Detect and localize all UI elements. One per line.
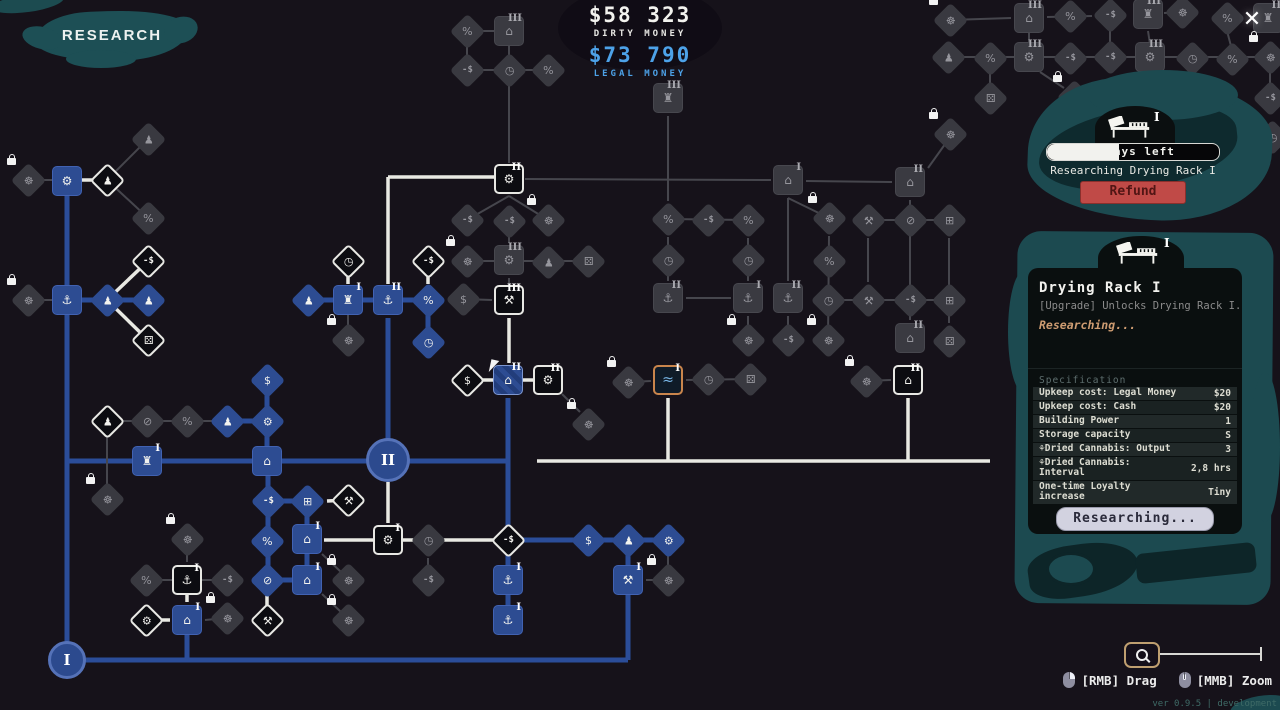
factory-icon: ⌂	[303, 533, 311, 545]
car-icon: ⚙	[141, 615, 151, 626]
spec-label: Upkeep cost: Cash	[1039, 402, 1136, 412]
factory-icon: ⌂	[504, 374, 512, 386]
tech-node[interactable]: ⚙II	[533, 365, 563, 395]
star-icon: ☸	[945, 129, 955, 140]
spec-row: One-time Loyalty increaseTiny	[1033, 481, 1237, 504]
moneyminus-icon: -$	[143, 257, 154, 266]
dice-icon: ⚄	[583, 256, 593, 267]
star-icon: ☸	[343, 335, 353, 346]
money-icon: $	[464, 375, 471, 386]
tech-node[interactable]: ⚙I	[373, 525, 403, 555]
research-screen: ☸⚙♟♟%☸⚓♟♟-$⚄♟⊘%♟⚙$♜I⌂☸◷♜I⚓II-$%◷☸♟⚙II-$-…	[0, 0, 1280, 710]
spec-value: 1	[1225, 416, 1231, 427]
node-numeral: II	[914, 320, 923, 331]
moneyminus-icon: -$	[423, 576, 434, 585]
star-icon: ☸	[222, 613, 232, 624]
truck-icon: ⚒	[262, 615, 272, 626]
lock-icon	[7, 278, 16, 285]
percent-icon: %	[262, 535, 272, 546]
tech-node[interactable]: ♜III	[653, 83, 683, 113]
dice-icon: ⚄	[143, 335, 153, 346]
tech-node[interactable]: ⚓I	[172, 565, 202, 595]
tech-node[interactable]: II	[366, 438, 410, 482]
dirty-money-amount: $58 323	[540, 3, 740, 27]
tech-node[interactable]: ⚙II	[494, 164, 524, 194]
lock-icon	[527, 198, 536, 205]
lock-icon	[845, 359, 854, 366]
tent-icon: ⌂	[183, 614, 191, 626]
water-icon: ≈	[662, 373, 674, 387]
dirty-money-label: DIRTY MONEY	[540, 29, 740, 39]
timer-icon: ◷	[743, 254, 753, 265]
percent-icon: %	[1065, 10, 1075, 21]
page-title: RESEARCH	[36, 27, 188, 44]
zoom-slider-endcap	[1260, 647, 1262, 661]
percent-icon: %	[182, 415, 192, 426]
tech-node[interactable]: ⌂I	[773, 165, 803, 195]
node-numeral: I	[516, 562, 521, 573]
refund-button[interactable]: Refund	[1080, 181, 1186, 204]
pill-icon: ⊞	[944, 295, 953, 306]
lock-icon	[86, 477, 95, 484]
spec-row: Upkeep cost: Legal Money$20	[1033, 387, 1237, 400]
star-icon: ☸	[543, 215, 553, 226]
divider	[1028, 368, 1242, 369]
star-icon: ☸	[343, 615, 353, 626]
bank-icon: ♜	[1143, 8, 1154, 20]
node-numeral: II	[392, 282, 401, 293]
tech-node[interactable]: ⚓II	[373, 285, 403, 315]
money-display: $58 323 DIRTY MONEY $73 790 LEGAL MONEY	[540, 0, 740, 80]
control-hints: [RMB] Drag [MMB] Zoom	[1063, 672, 1272, 688]
lock-icon	[327, 558, 336, 565]
factory-icon: ⌂	[906, 332, 914, 344]
tech-node[interactable]: ⌂I	[172, 605, 202, 635]
star-icon: ☸	[824, 213, 834, 224]
moneyminus-icon: -$	[1105, 11, 1116, 20]
node-numeral: II	[792, 280, 801, 291]
percent-icon: %	[1227, 53, 1237, 64]
person-icon: ♟	[143, 295, 153, 306]
person-icon: ♟	[943, 52, 953, 63]
tech-node[interactable]: ⌂II	[895, 323, 925, 353]
timer-icon: ◷	[504, 64, 514, 75]
node-numeral: I	[63, 651, 70, 669]
node-numeral: I	[675, 363, 680, 374]
tech-node[interactable]: ⚙	[52, 166, 82, 196]
node-numeral: III	[508, 242, 522, 253]
boat-icon: ⚓	[663, 292, 674, 304]
building-info-panel: I Drying Rack I [Upgrade] Unlocks Drying…	[1028, 268, 1242, 534]
building-subtitle: [Upgrade] Unlocks Drying Rack I.	[1039, 300, 1241, 312]
spec-value: 2,8 hrs	[1191, 463, 1231, 474]
node-numeral: III	[1147, 0, 1161, 7]
status-text: Researching Drying Rack I	[1040, 164, 1226, 177]
tech-node[interactable]: ⚙III	[494, 245, 524, 275]
forbidden-icon: ⊘	[905, 215, 914, 226]
forbidden-icon: ⊘	[142, 416, 151, 427]
pill-icon: ⊞	[302, 496, 311, 507]
boat-icon: ⚓	[743, 292, 754, 304]
factory-icon: ⌂	[906, 176, 914, 188]
building-title: Drying Rack I	[1039, 280, 1162, 296]
tech-node[interactable]: ♜III	[1133, 0, 1163, 29]
boat-icon: ⚓	[383, 294, 394, 306]
node-numeral: I	[356, 282, 361, 293]
spec-row: ⚘Dried Cannabis: Interval2,8 hrs	[1033, 457, 1237, 480]
tech-node[interactable]: ⌂	[252, 446, 282, 476]
car-icon: ⚙	[663, 535, 673, 546]
moneyminus-icon: -$	[423, 257, 434, 266]
tech-node[interactable]: ⚒I	[613, 565, 643, 595]
researching-button[interactable]: Researching...	[1056, 507, 1214, 531]
node-numeral: III	[1028, 39, 1042, 50]
spec-label: One-time Loyalty increase	[1039, 482, 1179, 503]
factory-icon: ⌂	[784, 174, 792, 186]
zoom-control	[1124, 642, 1272, 666]
star-icon: ☸	[945, 15, 955, 26]
boat-icon: ⚓	[503, 614, 514, 626]
money-icon: $	[460, 294, 467, 305]
tech-node[interactable]: ♜I	[132, 446, 162, 476]
star-icon: ☸	[102, 494, 112, 505]
node-numeral: II	[551, 363, 560, 374]
spec-row: Storage capacityS	[1033, 429, 1237, 442]
lock-icon	[1249, 35, 1258, 42]
boat-icon: ⚓	[62, 294, 73, 306]
car-icon: ⚙	[1024, 51, 1035, 63]
truck-icon: ⚒	[504, 294, 515, 306]
percent-icon: %	[743, 214, 753, 225]
truck-icon: ⚒	[863, 295, 873, 306]
tech-node[interactable]: ⚙III	[1014, 42, 1044, 72]
node-numeral: I	[796, 162, 801, 173]
zoom-hint: [MMB] Zoom	[1179, 672, 1272, 688]
percent-icon: %	[663, 213, 673, 224]
lock-icon	[327, 598, 336, 605]
spec-label: Storage capacity	[1039, 430, 1131, 440]
person-icon: ♟	[143, 134, 153, 145]
car-icon: ⚙	[262, 416, 272, 427]
timer-icon: ◷	[423, 534, 433, 545]
progress-label: 8 days left	[1047, 144, 1219, 160]
truck-icon: ⚒	[623, 574, 634, 586]
boat-icon: ⚓	[503, 574, 514, 586]
lock-icon	[567, 402, 576, 409]
node-numeral: I	[636, 562, 641, 573]
percent-icon: %	[141, 574, 151, 585]
tech-node[interactable]: ⌂II	[493, 365, 523, 395]
lock-icon	[7, 158, 16, 165]
tech-node[interactable]: ⌂II	[893, 365, 923, 395]
timer-icon: ◷	[1187, 52, 1197, 63]
moneyminus-icon: -$	[703, 216, 714, 225]
spec-row: ⚘Dried Cannabis: Output3	[1033, 443, 1237, 456]
percent-icon: %	[143, 212, 153, 223]
lock-icon	[446, 239, 455, 246]
spec-label: Upkeep cost: Legal Money	[1039, 388, 1176, 398]
tech-node[interactable]: ⚙III	[1135, 42, 1165, 72]
moneyminus-icon: -$	[905, 296, 916, 305]
car-icon: ⚙	[543, 374, 554, 386]
lock-icon	[808, 196, 817, 203]
lock-icon	[929, 0, 938, 5]
node-numeral: III	[1149, 39, 1163, 50]
star-icon: ☸	[583, 419, 593, 430]
person-icon: ♟	[222, 416, 232, 427]
spec-value: $20	[1214, 388, 1231, 399]
truck-icon: ⚒	[863, 215, 873, 226]
factory-icon: ⌂	[263, 455, 271, 467]
car-icon: ⚙	[504, 173, 515, 185]
car-icon: ⚙	[62, 175, 73, 187]
spec-header: Specification	[1039, 375, 1126, 386]
node-numeral: I	[516, 602, 521, 613]
star-icon: ☸	[743, 335, 753, 346]
close-button[interactable]: ✕	[1238, 6, 1266, 34]
tent-icon: ⌂	[303, 574, 311, 586]
moneyminus-icon: -$	[1105, 53, 1116, 62]
money-icon: $	[264, 375, 271, 386]
pill-icon: ⊞	[944, 215, 953, 226]
node-numeral: II	[512, 162, 521, 173]
tech-node[interactable]: ⚓II	[773, 283, 803, 313]
node-numeral: I	[194, 563, 199, 574]
moneyminus-icon: -$	[1065, 54, 1076, 63]
factory-icon: ⌂	[1025, 12, 1033, 24]
percent-icon: %	[423, 294, 433, 305]
spec-row: Building Power1	[1033, 415, 1237, 428]
node-numeral: III	[508, 13, 522, 24]
percent-icon: %	[824, 255, 834, 266]
tech-node[interactable]: ⌂II	[895, 167, 925, 197]
moneyminus-icon: -$	[263, 497, 274, 506]
person-icon: ♟	[303, 295, 313, 306]
star-icon: ☸	[182, 534, 192, 545]
right-mouse-icon	[1063, 672, 1075, 688]
person-icon: ♟	[102, 416, 112, 427]
node-numeral: I	[756, 280, 761, 291]
car-icon: ⚙	[1145, 51, 1156, 63]
timer-icon: ◷	[343, 255, 353, 266]
star-icon: ☸	[823, 335, 833, 346]
spec-value: $20	[1214, 402, 1231, 413]
timer-icon: ◷	[703, 373, 713, 384]
research-tag: RESEARCH	[36, 11, 188, 61]
drying-rack-icon	[1106, 116, 1154, 140]
moneyminus-icon: -$	[783, 336, 794, 345]
legal-money-label: LEGAL MONEY	[540, 69, 740, 79]
node-numeral: II	[512, 362, 521, 373]
star-icon: ☸	[861, 376, 871, 387]
percent-icon: %	[985, 52, 995, 63]
lock-icon	[647, 558, 656, 565]
node-numeral: III	[507, 283, 521, 294]
person-icon: ♟	[623, 535, 633, 546]
moneyminus-icon: -$	[503, 536, 514, 545]
node-numeral: II	[381, 451, 395, 469]
spec-value: Tiny	[1208, 487, 1231, 498]
zoom-hint-label: [MMB] Zoom	[1197, 673, 1272, 688]
legal-money-amount: $73 790	[540, 43, 740, 67]
star-icon: ☸	[343, 575, 353, 586]
tech-node[interactable]: ⌂I	[292, 565, 322, 595]
tech-node[interactable]: ⚓I	[733, 283, 763, 313]
rack-numeral: I	[1154, 110, 1160, 124]
car-icon: ⚙	[504, 254, 515, 266]
forbidden-icon: ⊘	[262, 575, 271, 586]
node-numeral: II	[911, 363, 920, 374]
lock-icon	[607, 360, 616, 367]
version-text: ver 0.9.5 | development	[1152, 699, 1277, 709]
building-state: Researching...	[1039, 318, 1136, 332]
star-icon: ☸	[1177, 7, 1187, 18]
node-numeral: I	[155, 443, 160, 454]
star-icon: ☸	[663, 575, 673, 586]
star-icon: ☸	[23, 175, 33, 186]
lock-icon	[807, 318, 816, 325]
moneyminus-icon: -$	[462, 66, 473, 75]
tech-node[interactable]: ⌂III	[494, 16, 524, 46]
moneyminus-icon: -$	[462, 216, 473, 225]
timer-icon: ◷	[663, 254, 673, 265]
percent-icon: %	[462, 25, 472, 36]
timer-icon: ◷	[423, 336, 433, 347]
tech-node[interactable]: ⌂III	[1014, 3, 1044, 33]
boat-icon: ⚓	[783, 292, 794, 304]
money-icon: $	[585, 535, 592, 546]
spec-label: ⚘Dried Cannabis: Output	[1039, 444, 1171, 454]
dice-icon: ⚄	[745, 374, 755, 385]
node-numeral: I	[315, 562, 320, 573]
tech-node[interactable]: ⚓I	[493, 605, 523, 635]
node-numeral: II	[914, 164, 923, 175]
spec-row: Upkeep cost: Cash$20	[1033, 401, 1237, 414]
tech-node[interactable]: ⚓II	[653, 283, 683, 313]
star-icon: ☸	[462, 256, 472, 267]
drag-hint: [RMB] Drag	[1063, 672, 1156, 688]
node-numeral: I	[395, 523, 400, 534]
spec-value: 3	[1225, 444, 1231, 455]
tech-node[interactable]: ⌂I	[292, 524, 322, 554]
boat-icon: ⚓	[182, 574, 193, 586]
node-numeral: III	[667, 80, 681, 91]
car-icon: ⚙	[383, 534, 394, 546]
lock-icon	[727, 318, 736, 325]
tech-node[interactable]: ⚓	[52, 285, 82, 315]
dice-icon: ⚄	[944, 336, 954, 347]
research-progress-bar: 8 days left	[1046, 143, 1220, 161]
percent-icon: %	[1222, 12, 1232, 23]
research-status-panel: I 8 days left Researching Drying Rack I …	[1040, 108, 1226, 208]
bank-icon: ♜	[343, 294, 354, 306]
person-icon: ♟	[543, 257, 553, 268]
spec-label: Building Power	[1039, 416, 1119, 426]
node-numeral: I	[315, 521, 320, 532]
moneyminus-icon: -$	[222, 576, 233, 585]
dice-icon: ⚄	[985, 93, 995, 104]
zoom-slider-handle[interactable]	[1124, 642, 1160, 668]
person-icon: ♟	[102, 295, 112, 306]
bank-icon: ♜	[142, 455, 153, 467]
lock-icon	[166, 517, 175, 524]
drag-hint-label: [RMB] Drag	[1081, 673, 1156, 688]
lock-icon	[327, 318, 336, 325]
lock-icon	[206, 596, 215, 603]
star-icon: ☸	[623, 377, 633, 388]
factory-icon: ⌂	[904, 374, 912, 386]
truck-icon: ⚒	[343, 495, 353, 506]
person-icon: ♟	[102, 175, 112, 186]
drying-rack-icon	[1114, 242, 1162, 266]
tech-node[interactable]: ≈I	[653, 365, 683, 395]
bank-icon: ♜	[663, 92, 674, 104]
node-numeral: I	[195, 602, 200, 613]
zoom-slider-track[interactable]	[1154, 653, 1262, 655]
moneyminus-icon: -$	[504, 217, 515, 226]
node-numeral: II	[1272, 0, 1280, 11]
factory-icon: ⌂	[505, 25, 513, 37]
tech-node[interactable]: ♜I	[333, 285, 363, 315]
lock-icon	[929, 112, 938, 119]
spec-value: S	[1225, 430, 1231, 441]
middle-mouse-icon	[1179, 672, 1191, 688]
magnifier-icon	[1136, 649, 1148, 661]
tech-node[interactable]: ⚒III	[494, 285, 524, 315]
timer-icon: ◷	[823, 294, 833, 305]
tech-node[interactable]: I	[48, 641, 86, 679]
rack-numeral: I	[1164, 236, 1170, 250]
star-icon: ☸	[23, 295, 33, 306]
node-numeral: II	[672, 280, 681, 291]
tech-node[interactable]: ⚓I	[493, 565, 523, 595]
spec-table: Upkeep cost: Legal Money$20Upkeep cost: …	[1033, 387, 1237, 505]
node-numeral: III	[1028, 0, 1042, 11]
spec-label: ⚘Dried Cannabis: Interval	[1039, 458, 1179, 479]
star-icon: ☸	[1265, 52, 1275, 63]
